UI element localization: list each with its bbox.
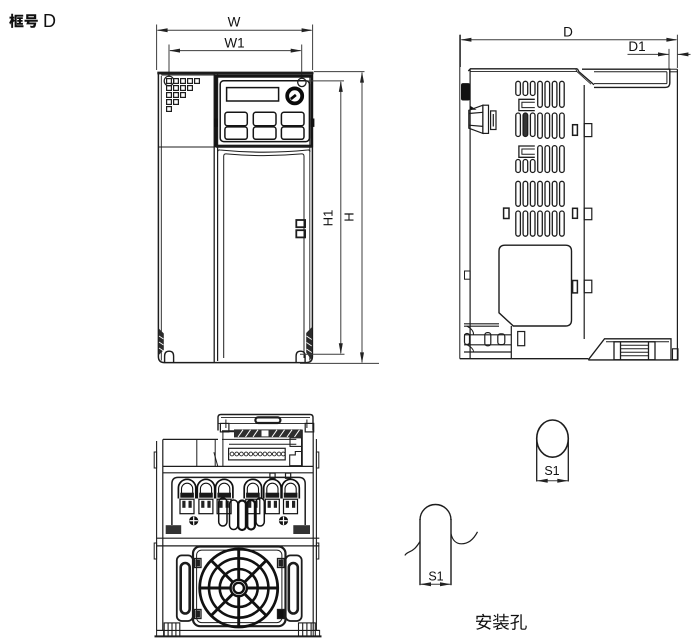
svg-text:W: W <box>228 15 241 30</box>
svg-text:H: H <box>342 212 357 221</box>
svg-text:D: D <box>563 25 573 40</box>
svg-text:S1: S1 <box>544 464 559 478</box>
svg-text:H1: H1 <box>320 210 335 227</box>
svg-text:D: D <box>43 11 56 31</box>
svg-text:W1: W1 <box>224 36 244 51</box>
svg-text:S1: S1 <box>428 570 443 584</box>
svg-text:D1: D1 <box>628 39 645 54</box>
